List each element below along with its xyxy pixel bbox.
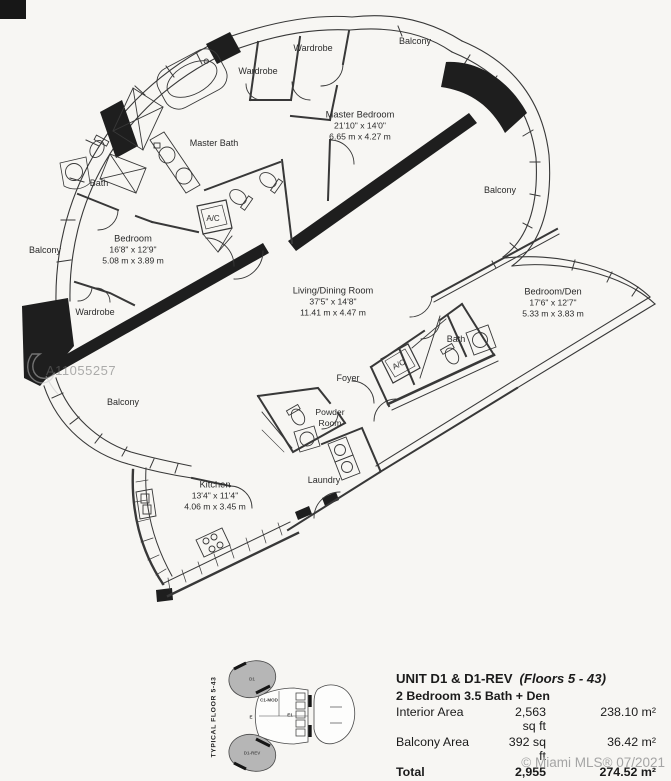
wardrobe-label-top: Wardrobe [293, 43, 332, 53]
sink-bath-left [60, 157, 90, 189]
toilet-master-1 [227, 186, 253, 210]
room-label-master-bedroom: Master Bedroom 21'10" x 14'0" 6.65 m x 4… [326, 110, 395, 143]
laundry-label: Laundry [308, 475, 341, 485]
toilet-master-2 [257, 169, 283, 193]
balcony-label-right: Balcony [484, 185, 516, 195]
toilet-bath-right [440, 343, 461, 366]
keyplan-unit-d1rev: D1-REV [244, 751, 261, 756]
unit-title-line: UNIT D1 & D1-REV(Floors 5 - 43) [396, 671, 656, 686]
room-label-bedroom: Bedroom 16'8" x 12'9" 5.08 m x 3.89 m [102, 234, 164, 267]
floorplan-page: Balcony Wardrobe Wardrobe Master Bath Ba… [0, 0, 671, 781]
keyplan-lobe-right [314, 685, 355, 744]
bath-right-label: Bath [447, 334, 466, 344]
balcony-label-top: Balcony [399, 36, 431, 46]
wardrobe-label-left: Wardrobe [75, 307, 114, 317]
balcony-label-bottom: Balcony [107, 397, 139, 407]
foyer-label: Foyer [336, 373, 359, 383]
ac-left-label: A/C [206, 214, 219, 224]
keyplan-unit-e1: E1 [287, 713, 293, 718]
unit-floors: (Floors 5 - 43) [520, 671, 606, 686]
keyplan-unit-d1: D1 [249, 677, 255, 682]
room-label-bedroom-den: Bedroom/Den 17'6" x 12'7" 5.33 m x 3.83 … [522, 287, 584, 320]
toilet-powder [286, 404, 307, 427]
area-row-interior: Interior Area 2,563 sq ft 238.10 m² [396, 705, 656, 733]
powder-room-label: Powder Room [315, 407, 344, 429]
mls-credit: © Miami MLS® 07/2021 [521, 755, 665, 770]
unit-subtitle: 2 Bedroom 3.5 Bath + Den [396, 689, 656, 703]
keyplan-core [255, 688, 310, 744]
shower-bath-right [412, 316, 446, 378]
keyplan-unit-e: E [249, 715, 252, 720]
unit-title: UNIT D1 & D1-REV [396, 671, 513, 686]
master-bath-label: Master Bath [190, 138, 239, 148]
floorplan-drawing [0, 0, 671, 660]
room-label-kitchen: Kitchen 13'4" x 11'4" 4.06 m x 3.45 m [184, 480, 246, 513]
room-label-living-dining: Living/Dining Room 37'5" x 14'8" 11.41 m… [293, 286, 374, 319]
shear-walls [22, 32, 527, 602]
balcony-label-left: Balcony [29, 245, 61, 255]
mls-watermark-id: A11055257 [46, 363, 116, 378]
wardrobe-label-mid: Wardrobe [238, 66, 277, 76]
keyplan-unit-c1mod: C1-MOD [260, 698, 278, 703]
bath-left-label: Bath [90, 178, 109, 188]
